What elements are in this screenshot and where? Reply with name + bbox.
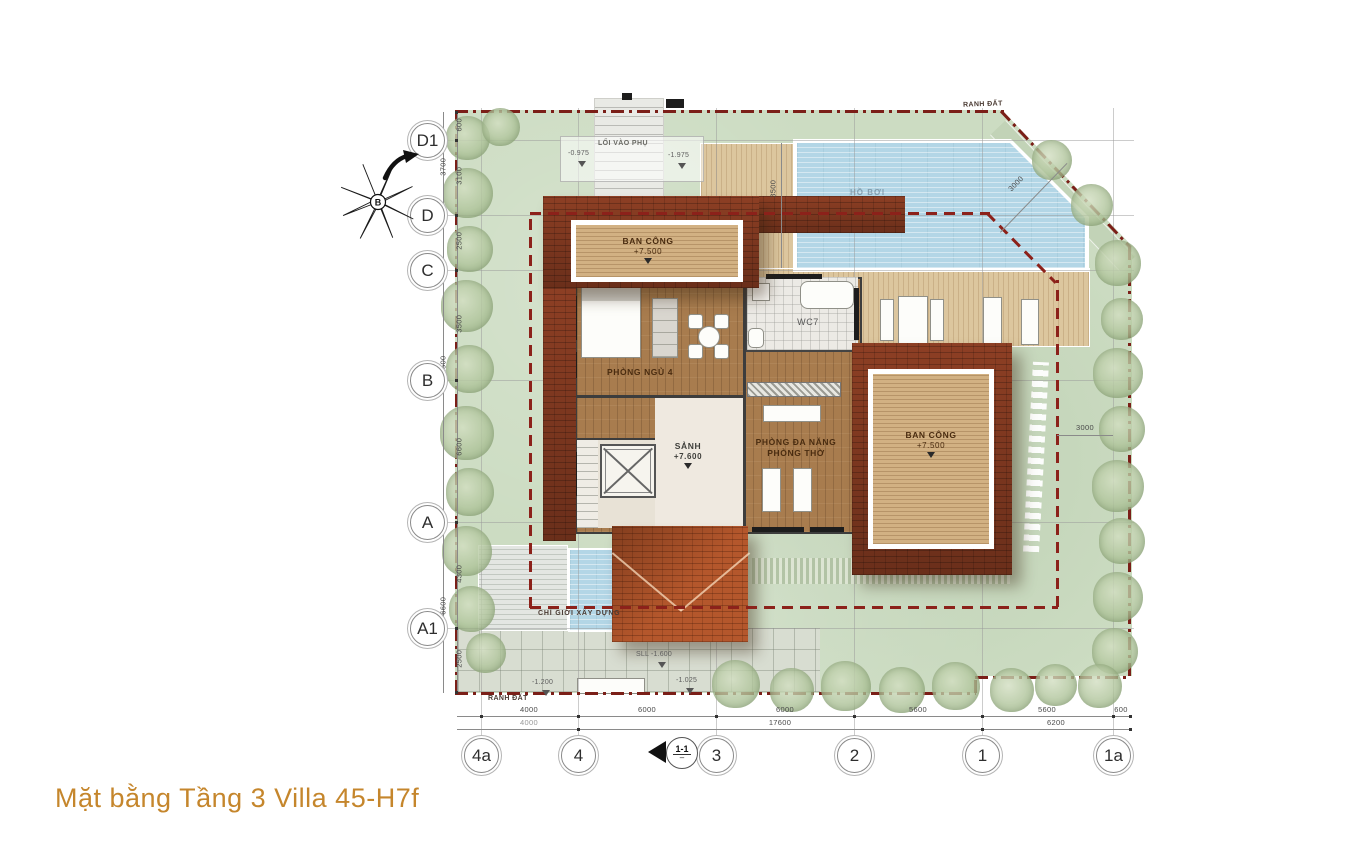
tree bbox=[1101, 298, 1143, 340]
label-construction-line: CHỈ GIỚI XÂY DỰNG bbox=[538, 610, 620, 617]
elevation-arrow-icon bbox=[644, 258, 652, 264]
compass-north-label: B bbox=[375, 198, 382, 208]
grid-bubble-2: 2 bbox=[837, 738, 872, 773]
tree bbox=[821, 661, 871, 711]
room-name: BAN CÔNG bbox=[881, 430, 981, 441]
tick bbox=[455, 269, 458, 272]
tree bbox=[446, 468, 494, 516]
tree bbox=[1099, 518, 1145, 564]
chair bbox=[688, 314, 703, 329]
elevation-arrow-icon bbox=[578, 161, 586, 167]
altar-table bbox=[793, 468, 812, 512]
tree bbox=[1093, 572, 1143, 622]
window-mark bbox=[810, 527, 844, 532]
label-wc: WC7 bbox=[788, 317, 828, 329]
elevation-arrow-icon bbox=[678, 163, 686, 169]
label-side-entry: LỐI VÀO PHỤ bbox=[598, 140, 648, 147]
construction-line-right bbox=[1056, 280, 1059, 607]
construction-line-bottom bbox=[530, 606, 1058, 609]
label-balcony-right: BAN CÔNG +7.500 bbox=[881, 430, 981, 458]
toilet bbox=[748, 328, 764, 348]
chair bbox=[714, 344, 729, 359]
tick bbox=[1129, 715, 1132, 718]
bathtub bbox=[800, 281, 854, 309]
gate-mark bbox=[622, 93, 632, 100]
elevation-mark: -0.975 bbox=[568, 150, 589, 157]
stairs bbox=[577, 440, 598, 528]
grid-bubble-A: A bbox=[410, 505, 445, 540]
label-hall: SẢNH +7.600 bbox=[658, 441, 718, 469]
dim-label: 4000 bbox=[508, 706, 550, 714]
tree bbox=[440, 406, 494, 460]
dim-line-pool bbox=[781, 143, 782, 268]
elevation-arrow-icon bbox=[658, 662, 666, 668]
label-bedroom: PHÒNG NGỦ 4 bbox=[580, 367, 700, 378]
roof-west-eave bbox=[543, 288, 576, 541]
dim-label: 6600 bbox=[455, 426, 463, 468]
dim-label: 6000 bbox=[764, 706, 806, 714]
chair bbox=[688, 344, 703, 359]
grid-bubble-4: 4 bbox=[561, 738, 596, 773]
dim-label: 2500 bbox=[455, 638, 463, 680]
sun-lounger bbox=[1021, 299, 1039, 345]
section-marker-dash: – bbox=[680, 755, 684, 761]
gate-mark bbox=[666, 99, 684, 108]
tick bbox=[715, 715, 718, 718]
room-elevation: +7.600 bbox=[658, 452, 718, 462]
striped-rug bbox=[747, 382, 841, 397]
room-name-2: PHÒNG THỜ bbox=[735, 448, 857, 459]
section-marker-arrow bbox=[648, 741, 666, 763]
altar-table bbox=[762, 468, 781, 512]
elevation-arrow-icon bbox=[686, 688, 694, 694]
elevation-arrow-icon bbox=[684, 463, 692, 469]
window-mark bbox=[766, 274, 822, 279]
tree bbox=[466, 633, 506, 673]
elevator bbox=[600, 444, 656, 498]
construction-line-top bbox=[530, 212, 990, 215]
grid-bubble-3: 3 bbox=[699, 738, 734, 773]
tree bbox=[1095, 240, 1141, 286]
dim-label: 4000 bbox=[508, 719, 550, 727]
dim-label: 5600 bbox=[1026, 706, 1068, 714]
construction-line-left bbox=[529, 212, 532, 608]
dim-label: 3000 bbox=[1064, 424, 1106, 432]
dim-label: 2500 bbox=[455, 220, 463, 262]
deck-chair bbox=[880, 299, 894, 341]
dim-label: 4300 bbox=[455, 553, 463, 595]
grid-bubble-A1: A1 bbox=[410, 611, 445, 646]
wardrobe bbox=[652, 298, 678, 358]
dim-chain-bottom-upper bbox=[457, 716, 1131, 717]
bed bbox=[581, 286, 641, 358]
dim-label: 600 bbox=[1100, 706, 1142, 714]
dim-label: 6200 bbox=[1035, 719, 1077, 727]
room-name: BAN CÔNG bbox=[598, 236, 698, 247]
dim-line-right-gap bbox=[1057, 435, 1113, 436]
tick bbox=[1129, 728, 1132, 731]
property-line-top bbox=[455, 110, 1004, 113]
tree bbox=[712, 660, 760, 708]
tick bbox=[455, 521, 458, 524]
window-mark bbox=[752, 527, 804, 532]
dim-label: 17600 bbox=[759, 719, 801, 727]
dim-label: 5600 bbox=[897, 706, 939, 714]
deck-table bbox=[898, 296, 928, 345]
label-boundary-bottom: RANH ĐẤT bbox=[488, 695, 528, 702]
dim-chain-bottom-lower bbox=[457, 729, 1131, 730]
section-marker: 1-1 – bbox=[666, 737, 698, 769]
room-name: SẢNH bbox=[658, 441, 718, 452]
porch-roof-shading bbox=[612, 526, 748, 642]
elevation-mark: -1.025 bbox=[676, 677, 697, 684]
tree bbox=[442, 526, 492, 576]
label-multi-room: PHÒNG ĐA NĂNG PHÒNG THỜ bbox=[735, 437, 857, 459]
cabinet bbox=[763, 405, 821, 422]
elevation-mark: -1.200 bbox=[532, 679, 553, 686]
grid-bubble-C: C bbox=[410, 253, 445, 288]
water-feature bbox=[568, 548, 614, 632]
tree bbox=[1093, 348, 1143, 398]
porch-hip-roof bbox=[612, 526, 748, 642]
label-balcony-top: BAN CÔNG +7.500 bbox=[598, 236, 698, 264]
page-title: Mặt bằng Tầng 3 Villa 45-H7f bbox=[55, 783, 419, 814]
balcony-right-deck bbox=[873, 374, 989, 544]
grid-bubble-4a: 4a bbox=[464, 738, 499, 773]
dim-chain-left-inner bbox=[457, 112, 458, 693]
tree bbox=[1035, 664, 1077, 706]
tree bbox=[1071, 184, 1113, 226]
elevation-mark: SLL -1.600 bbox=[636, 651, 672, 658]
grid-bubble-B: B bbox=[410, 363, 445, 398]
deck-chair bbox=[930, 299, 944, 341]
grid-bubble-1: 1 bbox=[965, 738, 1000, 773]
tick bbox=[981, 715, 984, 718]
tick bbox=[455, 379, 458, 382]
label-boundary-top: RANH ĐẤT bbox=[963, 100, 1003, 108]
tree bbox=[1078, 664, 1122, 708]
elevation-mark: -1.975 bbox=[668, 152, 689, 159]
tree bbox=[932, 662, 980, 710]
chair bbox=[714, 314, 729, 329]
tick bbox=[455, 627, 458, 630]
tree bbox=[482, 108, 520, 146]
wall-bedroom-hall bbox=[575, 395, 743, 398]
window-mark bbox=[854, 288, 859, 340]
tick bbox=[455, 691, 458, 694]
north-compass: B bbox=[333, 148, 423, 246]
compass-rose-icon: B bbox=[333, 148, 423, 246]
dim-label: 3500 bbox=[455, 303, 463, 345]
tree bbox=[441, 280, 493, 332]
tree bbox=[446, 345, 494, 393]
floor-plan-canvas: HỒ BƠI bbox=[0, 0, 1350, 854]
elevation-arrow-icon bbox=[927, 452, 935, 458]
tree bbox=[443, 168, 493, 218]
tick bbox=[853, 715, 856, 718]
tick bbox=[1112, 715, 1115, 718]
dim-label: 3100 bbox=[455, 155, 463, 197]
room-name: PHÒNG ĐA NĂNG bbox=[735, 437, 857, 448]
sun-lounger bbox=[983, 297, 1002, 345]
room-elevation: +7.500 bbox=[598, 247, 698, 257]
tree bbox=[1092, 460, 1144, 512]
tree bbox=[1032, 140, 1072, 180]
tick bbox=[480, 715, 483, 718]
elevation-arrow-icon bbox=[542, 690, 550, 696]
tick bbox=[577, 728, 580, 731]
dim-label: 6000 bbox=[626, 706, 668, 714]
tick bbox=[981, 728, 984, 731]
grid-bubble-1a: 1a bbox=[1096, 738, 1131, 773]
dim-label: 600 bbox=[455, 104, 463, 146]
wall-center bbox=[743, 277, 746, 530]
room-elevation: +7.500 bbox=[881, 441, 981, 451]
tick bbox=[577, 715, 580, 718]
table-round bbox=[698, 326, 720, 348]
dim-label: 3500 bbox=[769, 168, 777, 210]
grid-line-A1 bbox=[444, 628, 1134, 629]
tick bbox=[455, 214, 458, 217]
